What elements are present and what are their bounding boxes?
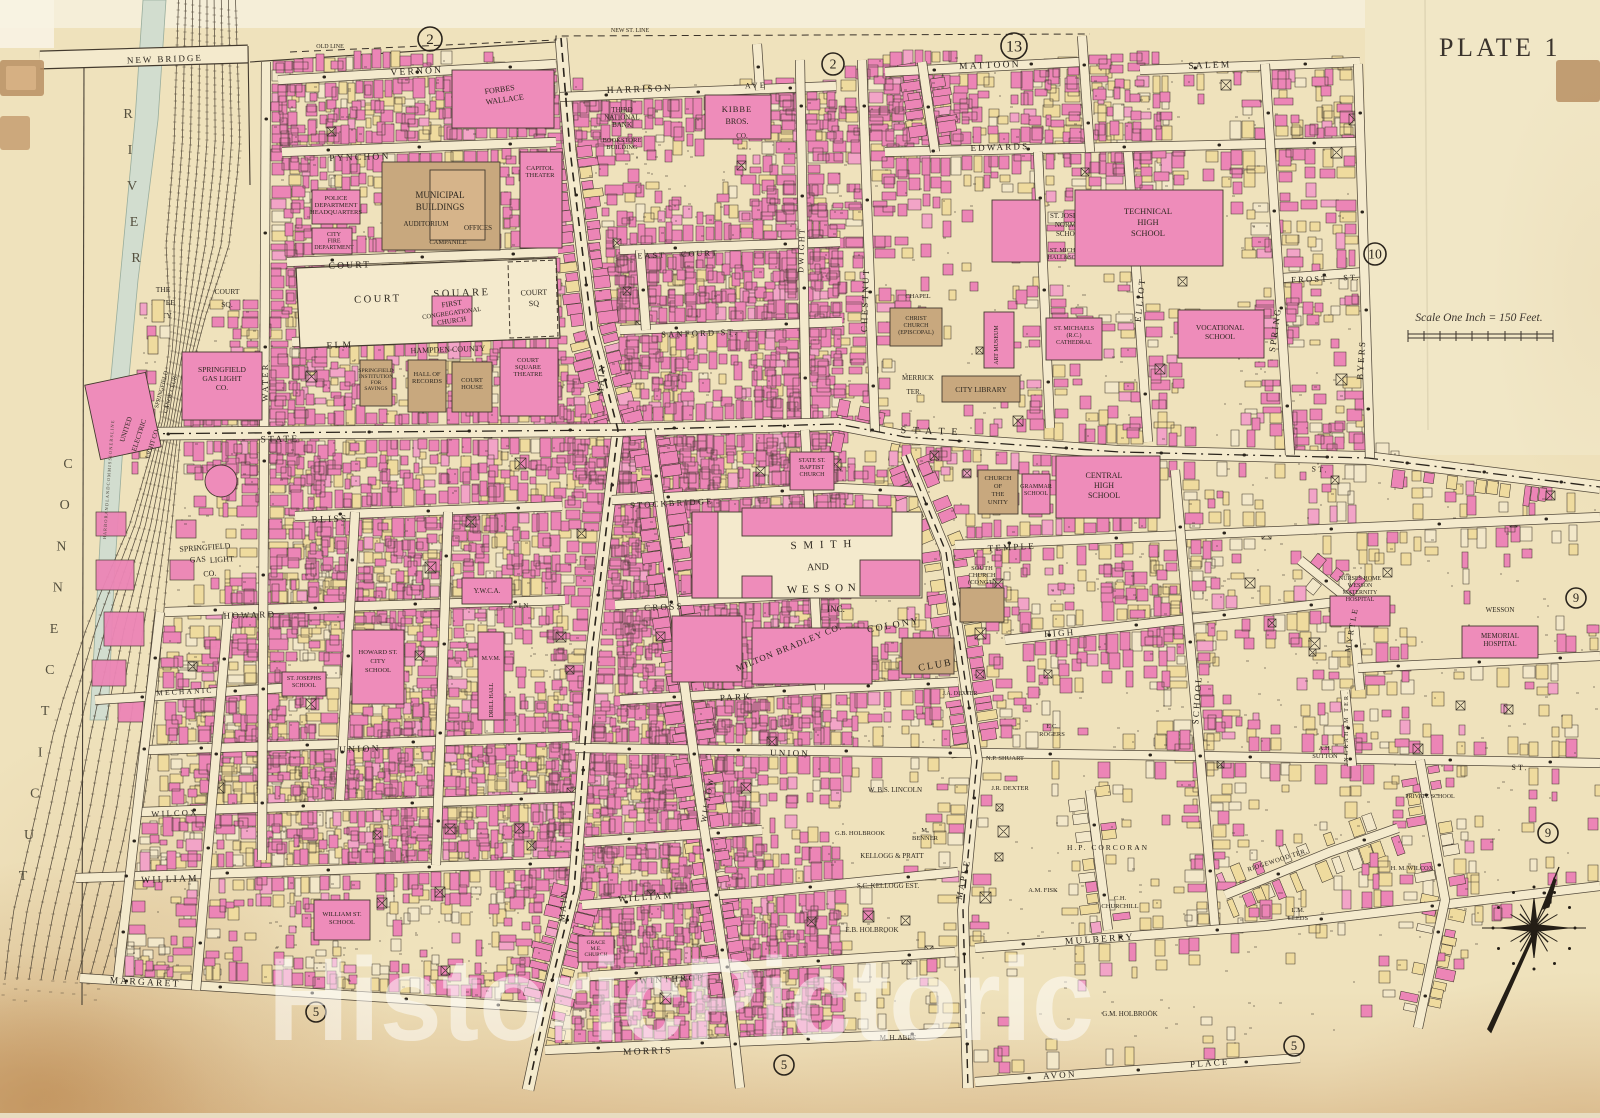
svg-text:(CONG'L): (CONG'L) [968,579,996,586]
svg-text:MATERNITY: MATERNITY [1343,590,1378,596]
svg-text:NEW ST. LINE: NEW ST. LINE [611,28,650,34]
svg-text:HOSPITAL: HOSPITAL [1346,597,1375,603]
svg-text:C: C [30,787,39,802]
svg-text:CHURCH: CHURCH [903,323,929,329]
svg-text:SCHOOL: SCHOOL [292,683,316,689]
svg-text:COURT: COURT [354,293,402,306]
svg-text:C.H.: C.H. [1114,895,1127,902]
svg-text:C: C [45,663,54,678]
svg-text:KIBBE: KIBBE [722,104,753,114]
svg-text:CAMPANILE: CAMPANILE [429,239,466,246]
svg-text:A.M. FISK: A.M. FISK [1028,887,1058,894]
svg-text:E.B. HOLBROOK: E.B. HOLBROOK [845,926,898,934]
svg-text:BUILDING: BUILDING [606,144,638,151]
svg-text:5: 5 [1291,1039,1297,1053]
svg-text:W. B.S. LINCOLN: W. B.S. LINCOLN [868,786,922,794]
svg-text:AUDITORIUM: AUDITORIUM [404,220,450,228]
svg-text:BOOKSTORE: BOOKSTORE [603,137,642,144]
svg-text:BLISS: BLISS [311,514,348,525]
svg-text:H. M. WILCOX: H. M. WILCOX [1391,865,1434,872]
svg-text:CROSS: CROSS [644,601,684,613]
svg-text:2: 2 [830,57,837,72]
svg-text:COURT: COURT [520,288,547,298]
svg-text:FROST: FROST [1291,273,1329,284]
svg-text:OF: OF [994,483,1003,490]
svg-text:M.: M. [921,827,929,834]
svg-text:J.A. DEXTER: J.A. DEXTER [943,691,978,697]
svg-text:SPRINGFIELD: SPRINGFIELD [198,365,247,374]
svg-text:STATE: STATE [261,435,300,446]
svg-text:ELM: ELM [326,341,353,352]
svg-text:BROS.: BROS. [726,117,749,126]
svg-text:GRAMMAR: GRAMMAR [1020,484,1052,490]
svg-text:WESSON: WESSON [1486,606,1515,614]
svg-text:COURT: COURT [517,357,539,364]
svg-text:S M I T H: S M I T H [790,538,853,552]
svg-text:LIGHT: LIGHT [210,554,235,565]
svg-text:ST.: ST. [1311,464,1329,474]
svg-text:UNION: UNION [339,744,381,755]
svg-text:N: N [56,539,66,554]
svg-text:R: R [131,251,141,266]
svg-text:CO.: CO. [203,569,217,579]
svg-text:ST.: ST. [1343,273,1361,283]
svg-text:FIRE: FIRE [327,239,340,245]
svg-text:HistoricPictoric: HistoricPictoric [268,934,1094,1066]
svg-text:CITY: CITY [327,232,342,238]
svg-text:9: 9 [1545,826,1551,840]
svg-text:SQ.: SQ. [221,300,233,309]
svg-text:BUILDINGS: BUILDINGS [416,202,465,212]
svg-text:HEADQUARTERS: HEADQUARTERS [310,209,362,216]
svg-text:9: 9 [1573,591,1579,605]
svg-text:Scale One Inch = 150 Feet.: Scale One Inch = 150 Feet. [1415,312,1542,324]
svg-text:THE: THE [156,285,171,294]
svg-text:COURT: COURT [215,287,240,296]
svg-text:CHURCH: CHURCH [799,472,825,478]
svg-text:I: I [38,745,43,760]
svg-text:WILLIAM ST.: WILLIAM ST. [322,911,362,918]
svg-text:M.V.M.: M.V.M. [482,656,501,662]
svg-text:E: E [130,215,139,230]
svg-text:CHRIST: CHRIST [905,316,927,322]
svg-text:R: R [123,107,133,122]
svg-text:W E S S O N: W E S S O N [787,582,857,596]
svg-text:10: 10 [1368,247,1382,262]
svg-text:CENTRAL: CENTRAL [1086,471,1123,480]
svg-text:SCHOOL: SCHOOL [1024,491,1048,497]
svg-text:CO.: CO. [736,132,748,140]
svg-text:BAPTIST: BAPTIST [800,465,825,471]
svg-text:SCHOOL: SCHOOL [365,667,391,674]
svg-text:DRILL HALL: DRILL HALL [489,682,495,717]
svg-text:TER.: TER. [907,388,922,396]
svg-text:SCHOOL: SCHOOL [1131,228,1165,238]
svg-text:LEEDS: LEEDS [1288,915,1309,922]
svg-text:COURT: COURT [328,260,371,271]
svg-text:THE: THE [992,491,1005,498]
svg-text:H.P. CORCORAN: H.P. CORCORAN [1067,843,1149,852]
svg-text:CO.: CO. [216,383,228,392]
svg-text:BENNER: BENNER [912,835,939,842]
svg-text:SQ: SQ [529,299,540,308]
svg-text:VOCATIONAL: VOCATIONAL [1196,323,1245,332]
svg-text:INC.: INC. [827,604,845,614]
svg-text:E: E [50,622,59,637]
svg-text:WILLIAM: WILLIAM [141,874,199,886]
svg-text:HOWARD: HOWARD [223,609,276,621]
svg-text:ST. JOSEPHS: ST. JOSEPHS [287,676,321,682]
svg-text:U: U [24,828,34,843]
svg-text:TECHNICAL: TECHNICAL [1124,206,1172,216]
svg-text:EAST: EAST [637,251,666,261]
svg-text:CATHEDRAL: CATHEDRAL [1056,340,1092,346]
svg-text:UNION: UNION [770,748,810,759]
svg-text:WILCOX: WILCOX [151,807,199,819]
svg-text:SOUTH: SOUTH [971,565,993,572]
svg-text:N.P. SHUART: N.P. SHUART [986,755,1024,762]
svg-text:ROGERS: ROGERS [1039,731,1065,738]
svg-text:CHURCHILL: CHURCHILL [1101,903,1138,910]
svg-text:DWIGHT: DWIGHT [796,227,807,273]
svg-text:INGRAHAM TER.: INGRAHAM TER. [1344,690,1350,766]
svg-text:G.M. HOLBROOK: G.M. HOLBROOK [1102,1010,1157,1018]
svg-text:V: V [127,179,137,194]
svg-text:DEPARTMENT: DEPARTMENT [314,245,354,251]
svg-text:COURT: COURT [461,377,483,384]
svg-text:T: T [19,869,28,884]
svg-text:WESSON: WESSON [1348,583,1373,589]
svg-text:ART MUSEUM: ART MUSEUM [994,325,1000,365]
svg-text:A.H.: A.H. [1319,745,1332,752]
svg-text:GAS LIGHT: GAS LIGHT [202,374,242,383]
svg-text:KELLOGG & PRATT: KELLOGG & PRATT [860,852,924,860]
svg-text:ST.: ST. [1511,763,1528,772]
svg-text:J.R. DEXTER: J.R. DEXTER [991,785,1029,792]
svg-text:N: N [53,581,63,596]
svg-text:THEATER: THEATER [526,172,556,179]
svg-text:G.B. HOLBROOK: G.B. HOLBROOK [835,830,885,837]
svg-text:SCHOOL: SCHOOL [329,919,355,926]
svg-text:SAVINGS: SAVINGS [364,386,387,392]
svg-text:PYNCHON: PYNCHON [329,152,391,164]
svg-text:HOSPITAL: HOSPITAL [1483,640,1516,648]
svg-text:GAS: GAS [190,554,207,564]
svg-text:ST. MICHAELS: ST. MICHAELS [1054,326,1094,332]
svg-text:T: T [41,704,50,719]
svg-text:NURSES HOME: NURSES HOME [1339,576,1382,582]
svg-text:O: O [60,498,70,513]
svg-text:AND: AND [807,562,829,574]
svg-text:SQUARE: SQUARE [515,364,541,371]
svg-text:2: 2 [426,32,434,48]
svg-text:HOWARD ST.: HOWARD ST. [359,649,398,656]
svg-text:OFFICES: OFFICES [464,224,492,232]
svg-text:E.C.: E.C. [1046,723,1058,730]
svg-text:STATE ST.: STATE ST. [798,458,826,464]
svg-text:COURT: COURT [681,248,719,258]
svg-text:CITY LIBRARY: CITY LIBRARY [955,385,1007,394]
svg-text:MUNICIPAL: MUNICIPAL [415,190,464,200]
svg-text:CHAPEL: CHAPEL [905,293,930,300]
svg-text:HOUSE: HOUSE [461,384,483,391]
svg-text:HALL OF: HALL OF [413,371,440,378]
svg-text:CHURCH: CHURCH [984,475,1011,482]
svg-text:CHURCH: CHURCH [968,572,995,579]
svg-text:13: 13 [1006,37,1022,55]
svg-text:PLATE 1: PLATE 1 [1439,33,1561,62]
svg-text:HIGH: HIGH [1137,217,1158,227]
svg-text:AVE: AVE [745,81,767,91]
svg-text:Y.W.C.A.: Y.W.C.A. [474,587,501,595]
svg-text:SALEM: SALEM [1188,60,1232,72]
svg-text:I: I [128,143,133,158]
svg-text:CAPITOL: CAPITOL [526,165,553,172]
svg-text:S.C. KELLOGG EST.: S.C. KELLOGG EST. [857,882,920,890]
svg-text:UNITY: UNITY [988,499,1009,506]
svg-text:EDWARDS: EDWARDS [970,141,1029,153]
svg-text:RECORDS: RECORDS [412,378,442,385]
svg-text:POLICE: POLICE [325,195,348,202]
svg-text:DEPARTMENT: DEPARTMENT [315,202,358,209]
svg-text:OLD LINE: OLD LINE [316,44,344,50]
svg-text:MEMORIAL: MEMORIAL [1481,632,1519,640]
svg-text:CITY: CITY [370,658,385,665]
svg-text:(EPISCOPAL): (EPISCOPAL) [898,329,933,336]
svg-text:6 IN: 6 IN [509,602,531,611]
svg-text:THEATRE: THEATRE [514,371,543,378]
svg-text:L.M.: L.M. [1292,907,1305,914]
svg-text:SCHOOL: SCHOOL [1205,332,1235,341]
svg-text:MERRICK: MERRICK [902,374,934,382]
svg-text:SUTTON: SUTTON [1312,753,1338,760]
svg-text:SCHOOL: SCHOOL [1088,491,1120,500]
svg-text:PARK: PARK [720,691,752,703]
svg-text:C: C [63,457,72,472]
svg-text:HIGH: HIGH [1094,481,1114,490]
svg-text:S T A T E: S T A T E [900,425,959,438]
svg-text:WATER: WATER [260,362,270,401]
svg-text:BANK: BANK [612,121,632,129]
svg-text:(R.C.): (R.C.) [1067,332,1082,339]
svg-text:PRIVATE SCHOOL: PRIVATE SCHOOL [1405,794,1455,800]
